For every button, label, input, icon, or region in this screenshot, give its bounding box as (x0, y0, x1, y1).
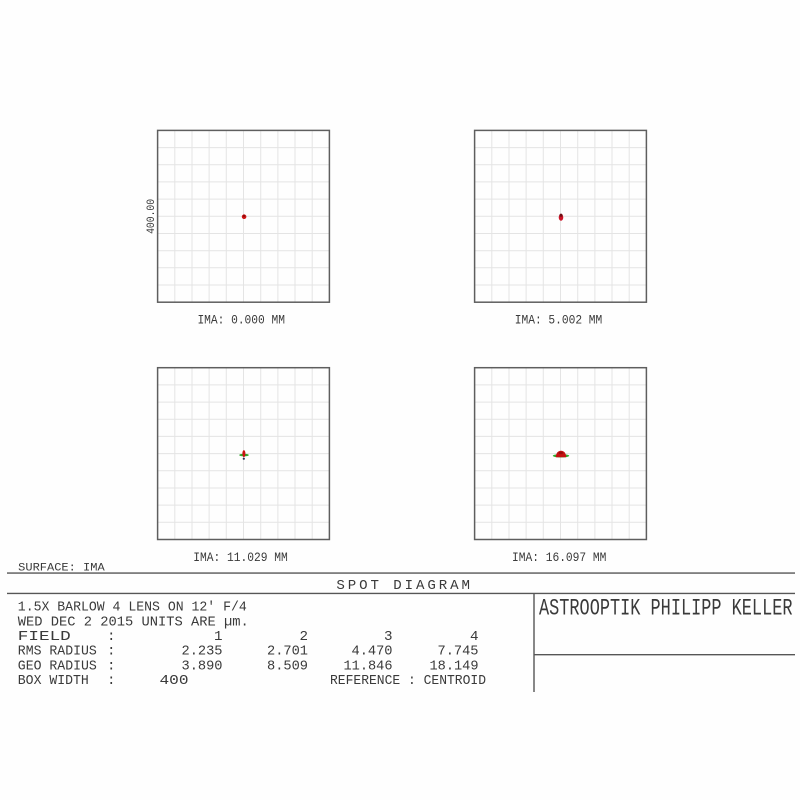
svg-text:2.701: 2.701 (267, 644, 308, 660)
svg-text:400: 400 (160, 673, 189, 689)
svg-text:ASTROOPTIK PHILIPP KELLER: ASTROOPTIK PHILIPP KELLER (539, 595, 793, 621)
svg-text:11.846: 11.846 (344, 658, 393, 674)
svg-text:3: 3 (384, 629, 393, 645)
svg-text:RMS RADIUS: RMS RADIUS (18, 644, 97, 660)
svg-text::: : (107, 644, 116, 660)
svg-text:1: 1 (214, 629, 223, 645)
svg-text:7.745: 7.745 (438, 644, 479, 660)
svg-text:1.5X BARLOW 4 LENS ON 12' F/4: 1.5X BARLOW 4 LENS ON 12' F/4 (18, 600, 247, 616)
svg-text:2.235: 2.235 (182, 644, 223, 660)
svg-text:4: 4 (470, 629, 479, 645)
svg-text:18.149: 18.149 (430, 658, 479, 674)
svg-text::: : (107, 673, 116, 689)
svg-text:3.890: 3.890 (182, 658, 223, 674)
svg-text:IMA: 5.002 MM: IMA: 5.002 MM (515, 312, 603, 327)
svg-text:FIELD: FIELD (18, 629, 71, 645)
svg-text:IMA: 0.000 MM: IMA: 0.000 MM (197, 312, 285, 327)
svg-text:400.00: 400.00 (146, 199, 158, 234)
svg-text:WED DEC 2 2015 UNITS ARE µm.: WED DEC 2 2015 UNITS ARE µm. (18, 614, 249, 630)
svg-text:4.470: 4.470 (352, 644, 393, 660)
svg-text:BOX WIDTH: BOX WIDTH (18, 673, 89, 689)
svg-text:IMA: 16.097 MM: IMA: 16.097 MM (512, 550, 607, 565)
svg-text:8.509: 8.509 (267, 658, 308, 674)
svg-text::: : (107, 658, 116, 674)
svg-text:REFERENCE : CENTROID: REFERENCE : CENTROID (330, 673, 486, 689)
svg-text:2: 2 (299, 629, 308, 645)
svg-text::: : (107, 629, 116, 645)
svg-text:GEO RADIUS: GEO RADIUS (18, 658, 97, 674)
svg-text:IMA: 11.029 MM: IMA: 11.029 MM (193, 550, 288, 565)
